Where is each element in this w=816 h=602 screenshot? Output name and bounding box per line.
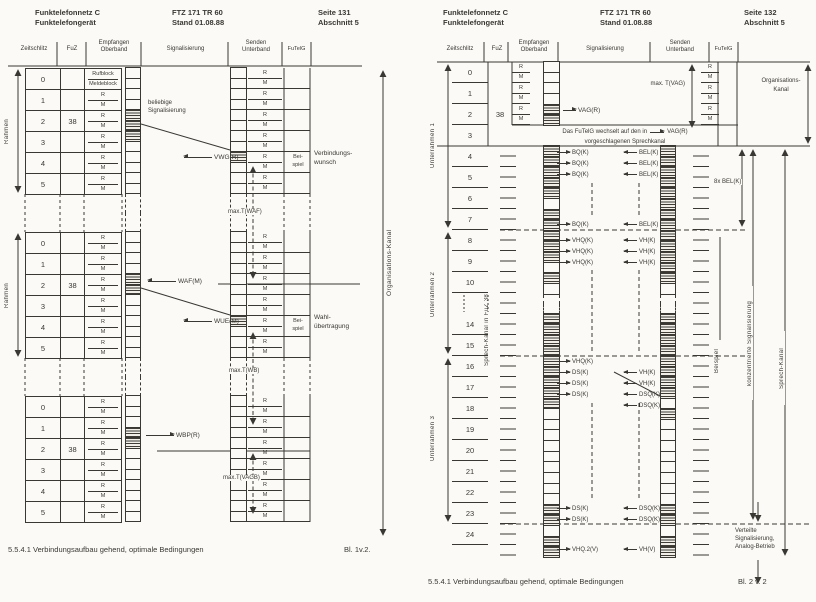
timeslot-number: 1 (452, 83, 488, 104)
timeslot-number: 0 (26, 233, 61, 253)
tx-signal-label: BQ(K) (570, 222, 624, 228)
m-subcell: M (248, 285, 282, 295)
rm-cell: R M (85, 111, 121, 131)
r-subcell: R (248, 316, 282, 327)
vag-signal: VAG(R) (563, 105, 600, 115)
timeslot-row: 7 (452, 209, 488, 230)
beispiel-line1: Bei- (287, 317, 309, 325)
sprech-kanal-label: Sprech-Kanal (779, 331, 785, 405)
senden-rm-row: R M (247, 68, 310, 89)
senden-rm-row: R M (247, 438, 310, 459)
m-subcell: M (85, 244, 121, 254)
signal-row: DS(K) DSQ(K) (557, 503, 660, 514)
timeslot-number: 0 (26, 69, 61, 89)
signal-row: BQ(K) BEL(K) (557, 219, 658, 230)
ds-dsq-group: DS(K) DSQ(K) DS(K) DSQ(K) (557, 503, 660, 525)
signal-segment (125, 511, 141, 523)
timeslot-row: 4 R M (26, 153, 121, 174)
senden-rm-row: R M (247, 232, 310, 253)
beispiel-label: Beispiel (714, 343, 720, 379)
wahluebertragung-label: Wahl- übertragung (314, 313, 349, 331)
m-subcell: M (85, 265, 121, 275)
timeslot-row: 15 (452, 335, 488, 356)
wue-signal: WUE(M) (184, 316, 239, 326)
empfangen-tick-column (500, 146, 516, 558)
rm-row: R M (512, 62, 530, 83)
timeslot-number: 6 (452, 188, 488, 209)
signal-segment (125, 183, 141, 195)
dsq-solo-row: DSQ(K) (624, 400, 660, 411)
m-subcell: M (701, 115, 719, 126)
beispiel-line2: spiel (287, 325, 309, 333)
rx-signal-label: VH(K) (637, 381, 655, 387)
signal-row: DS(K) VH(K) (557, 378, 660, 389)
empfangen-strip-3 (125, 396, 141, 522)
arrow-right-icon (563, 110, 576, 111)
timeslot-row: 19 (452, 419, 488, 440)
unterrahmen-2-label: Unterrahmen 2 (430, 238, 436, 350)
fuz-number (61, 254, 85, 274)
verbindung-line1: Verbindungs- (314, 149, 352, 158)
rx-signal-label: VH(K) (637, 370, 655, 376)
m-subcell: M (248, 121, 282, 131)
r-subcell: R (248, 110, 282, 121)
senden-rm-row: R M (247, 173, 310, 194)
rx-signal-label: BEL(K) (637, 150, 658, 156)
arrow-left-icon (624, 251, 637, 252)
senden-strip-3 (230, 396, 247, 522)
tx-signal-label: BQ(K) (570, 172, 624, 178)
timeslot-number: 0 (26, 397, 61, 417)
timeslot-row: 1 (452, 83, 512, 104)
empfangen-strip-gap-2 (125, 358, 141, 396)
rx-signal-label: DSQ(K) (637, 403, 660, 409)
timeslot-number: 18 (452, 398, 488, 419)
fuz-number: 38 (61, 275, 85, 295)
organisations-kanal-label: Organisations-Kanal (386, 165, 393, 360)
timeslot-row: 17 (452, 377, 488, 398)
signal-row: DS(K) DSQ(K) (557, 389, 660, 400)
signal-segment (543, 295, 560, 305)
signal-row: VHQ(K) VH(K) (557, 246, 655, 257)
signal-segment (125, 377, 141, 396)
tx-signal-label: BQ(K) (570, 150, 624, 156)
r-subcell: R (248, 274, 282, 285)
rx-signal-label: DSQ(K) (637, 392, 660, 398)
tx-signal-label: VHQ(K) (570, 359, 624, 365)
timeslot-number: 24 (452, 524, 488, 545)
max-t-waf-label: max.T(WAF) (227, 209, 263, 215)
timeslot-number: 16 (452, 356, 488, 377)
signal-row: BQ(K) BEL(K) (557, 158, 658, 169)
fuz-number (61, 132, 85, 152)
arrow-left-icon (624, 394, 637, 395)
timeslot-row (452, 293, 488, 314)
r-subcell: R (88, 502, 118, 513)
fuz-number (61, 69, 85, 89)
arrow-left-icon (624, 262, 637, 263)
timeslot-number: 22 (452, 482, 488, 503)
tx-signal-label: BQ(K) (570, 161, 624, 167)
rm-cell: R M (85, 296, 121, 316)
rx-signal-label: VH(K) (637, 260, 655, 266)
page-132: Funktelefonnetz C Funktelefongerät FTZ 1… (408, 0, 816, 602)
r-subcell: R (512, 104, 530, 115)
signal-segment (125, 213, 141, 232)
m-subcell: M (85, 164, 121, 174)
arrow-left-icon (148, 281, 176, 282)
timeslot-row: 2 38 R M (26, 111, 121, 132)
timeslot-number: 8 (452, 230, 488, 251)
rm-cell: R M (85, 481, 121, 501)
m-subcell: M (248, 348, 282, 358)
arrow-right-icon (557, 163, 570, 164)
frame-3-table: 0 R M 1 R M 2 38 R M 3 R M (25, 396, 122, 523)
page-131: Funktelefonnetz C Funktelefongerät FTZ 1… (0, 0, 408, 602)
timeslot-row: 3 R M (26, 296, 121, 317)
m-subcell: Meldeblock (85, 80, 121, 90)
wahl-line2: übertragung (314, 322, 349, 331)
org-slot-numbers: 0 1 2 38 (452, 62, 512, 125)
senden-tick-column (693, 146, 709, 558)
rahmen-label-1: Rahmen (4, 100, 10, 162)
senden-rm-row: R M (247, 480, 310, 501)
timeslot-row: 0 (452, 62, 512, 83)
timeslot-number: 17 (452, 377, 488, 398)
r-subcell: R (88, 254, 118, 265)
senden-rm-column-1: R M R M R M R M R M R M (247, 68, 310, 194)
fuz-number: 38 (488, 104, 512, 125)
senden-rm-column: R M R M R M (701, 62, 719, 125)
signal-segment (230, 213, 247, 232)
signal-row: BQ(K) BEL(K) (557, 169, 658, 180)
timeslot-row: 5 R M (26, 174, 121, 195)
fuz-number: 38 (61, 439, 85, 459)
timeslot-row: 0 R M (26, 233, 121, 254)
timeslot-number: 5 (26, 174, 61, 194)
rm-cell: R M (85, 174, 121, 194)
timeslot-number: 4 (26, 317, 61, 337)
wue-label: WUE(M) (214, 318, 239, 325)
arrow-right-icon (557, 224, 570, 225)
timeslot-row: 0 R M (26, 397, 121, 418)
senden-strip-1 (230, 68, 247, 194)
arrow-left-icon (184, 321, 212, 322)
r-subcell: R (88, 460, 118, 471)
arrow-right-icon (146, 435, 174, 436)
timeslot-row: 4 R M (26, 481, 121, 502)
arrow-right-icon (557, 383, 570, 384)
arrow-left-icon (624, 163, 637, 164)
timeslot-row: 1 R M (26, 90, 121, 111)
fuz-number: 38 (61, 111, 85, 131)
r-subcell: R (88, 481, 118, 492)
timeslot-number: 10 (452, 272, 488, 293)
timeslot-number: 4 (452, 146, 488, 167)
r-subcell: R (248, 480, 282, 491)
timeslot-number: 5 (26, 502, 61, 522)
beispiel-note-2: Bei- spiel (287, 317, 309, 333)
r-subcell: R (88, 111, 118, 122)
m-subcell: M (248, 243, 282, 253)
m-subcell: M (512, 115, 530, 126)
speech-empfangen-strip (543, 146, 560, 558)
rm-cell: R M (85, 338, 121, 358)
timeslot-row: 2 38 R M (26, 275, 121, 296)
sheet-number: Bl. 2 v. 2 (738, 577, 767, 586)
vag-label: VAG(R) (578, 107, 600, 114)
r-subcell: R (88, 90, 118, 101)
r-subcell: R (248, 173, 282, 184)
fuz-number (61, 174, 85, 194)
timeslot-number: 4 (26, 481, 61, 501)
timeslot-number: 2 (452, 104, 488, 125)
signal-segment (660, 283, 676, 295)
r-subcell: Rufblock (88, 69, 118, 80)
ds-group: DS(K) VH(K) DS(K) VH(K) DS(K) DSQ(K) (557, 367, 660, 400)
bq-bel-group-1: BQ(K) BEL(K) BQ(K) BEL(K) BQ(K) BEL(K) (557, 147, 658, 180)
senden-strip-gap-2 (230, 358, 247, 396)
m-subcell: M (248, 184, 282, 194)
timeslot-number (452, 293, 488, 314)
rahmen-label-2: Rahmen (4, 264, 10, 326)
m-subcell: M (248, 163, 282, 173)
m-subcell: M (85, 185, 121, 195)
figure-caption: 5.5.4.1 Verbindungsaufbau gehend, optima… (428, 577, 624, 586)
r-subcell: R (701, 83, 719, 94)
arrow-right-icon (557, 174, 570, 175)
note-text1: Das FuTelG wechselt auf den in (562, 127, 647, 137)
timeslot-number: 19 (452, 419, 488, 440)
r-subcell: R (248, 253, 282, 264)
tx-signal-label: VHQ(K) (570, 249, 624, 255)
max-t-wb-label: max.T(WB) (228, 368, 260, 374)
arrow-right-icon (557, 361, 570, 362)
fuz-number (61, 460, 85, 480)
signal-segment (543, 283, 560, 295)
tx-signal-label: VHQ(K) (570, 260, 624, 266)
arrow-left-icon (624, 508, 637, 509)
m-subcell: M (85, 492, 121, 502)
m-subcell: M (85, 307, 121, 317)
beispiel-note-1: Bei- spiel (287, 153, 309, 169)
rx-signal-label: DSQ(K) (637, 517, 660, 523)
r-subcell: R (248, 417, 282, 428)
m-subcell: M (85, 471, 121, 481)
signal-segment (125, 194, 141, 213)
fuz-number (61, 296, 85, 316)
rm-cell: Rufblock Meldeblock (85, 69, 121, 89)
tx-signal-label: DS(K) (570, 506, 624, 512)
m-subcell: M (85, 513, 121, 523)
timeslot-number: 5 (452, 167, 488, 188)
m-subcell: M (248, 79, 282, 89)
org-kanal-line1: Organisations- (752, 77, 810, 86)
m-subcell: M (512, 73, 530, 84)
org-empfangen-strip (543, 62, 560, 126)
arrow-right-icon (557, 519, 570, 520)
m-subcell: M (701, 73, 719, 84)
arrow-left-icon (624, 519, 637, 520)
max-t-vagb-label: max.T(VAGB) (222, 475, 261, 481)
m-subcell: M (248, 512, 282, 522)
m-subcell: M (248, 407, 282, 417)
tx-signal-label: VHQ(K) (570, 238, 624, 244)
rx-signal-label: VH(V) (637, 547, 655, 553)
timeslot-row: 23 (452, 503, 488, 524)
rx-signal-label: BEL(K) (637, 222, 658, 228)
frame-1-table: 0 Rufblock Meldeblock 1 R M 2 38 R M 3 (25, 68, 122, 195)
rm-row: R M (701, 62, 719, 83)
signal-segment (543, 114, 560, 126)
rm-row: R M (512, 83, 530, 104)
beliebige-line2: Signalisierung (148, 107, 186, 115)
wahl-line1: Wahl- (314, 313, 349, 322)
timeslot-number: 21 (452, 461, 488, 482)
m-subcell: M (248, 306, 282, 316)
rx-signal-label: BEL(K) (637, 161, 658, 167)
m-subcell: M (85, 143, 121, 153)
timeslot-row: 5 (452, 167, 488, 188)
timeslot-number: 15 (452, 335, 488, 356)
rm-cell: R M (85, 153, 121, 173)
beispiel-line2: spiel (287, 161, 309, 169)
rm-cell: R M (85, 317, 121, 337)
r-subcell: R (88, 233, 118, 244)
r-subcell: R (701, 104, 719, 115)
rx-signal-label: BEL(K) (637, 172, 658, 178)
timeslot-row: 3 R M (26, 460, 121, 481)
tx-signal-label: DS(K) (570, 392, 624, 398)
timeslot-number: 3 (26, 296, 61, 316)
senden-rm-row: R M (247, 295, 310, 316)
m-subcell: M (248, 449, 282, 459)
m-subcell: M (85, 408, 121, 418)
r-subcell: R (248, 152, 282, 163)
vwg-signal: VWG(R) (184, 152, 239, 162)
senden-rm-row: R M (247, 337, 310, 358)
arrow-left-icon (624, 174, 637, 175)
rm-cell: R M (85, 439, 121, 459)
fuz-number (61, 233, 85, 253)
speech-slot-numbers: 4 5 6 7 8 9 10 14 15 16 17 18 19 20 (452, 146, 488, 545)
m-subcell: M (85, 101, 121, 111)
timeslot-row: 18 (452, 398, 488, 419)
timeslot-number: 7 (452, 209, 488, 230)
unterrahmen-1-label: Unterrahmen 1 (430, 95, 436, 195)
frame-2-table: 0 R M 1 R M 2 38 R M 3 R M (25, 232, 122, 359)
timeslot-number: 1 (26, 418, 61, 438)
senden-strip-2 (230, 232, 247, 358)
senden-rm-column-2: R M R M R M R M R M R M (247, 232, 310, 358)
m-subcell: M (85, 349, 121, 359)
r-subcell: R (88, 397, 118, 408)
r-subcell: R (88, 296, 118, 307)
m-subcell: M (85, 286, 121, 296)
signal-segment (230, 347, 247, 359)
timeslot-number: 2 (26, 111, 61, 131)
wbp-label: WBP(R) (176, 432, 200, 439)
signal-segment (230, 377, 247, 396)
timeslot-row: 10 (452, 272, 488, 293)
tx-signal-label: DS(K) (570, 370, 624, 376)
r-subcell: R (88, 317, 118, 328)
signal-segment (660, 546, 676, 558)
verteilte-line2: Signalisierung, (735, 535, 775, 543)
r-subcell: R (88, 275, 118, 286)
verteilte-line3: Analog-Betrieb (735, 543, 775, 551)
rm-row: R M (512, 104, 530, 125)
r-subcell: R (248, 131, 282, 142)
r-subcell: R (88, 338, 118, 349)
r-subcell: R (88, 174, 118, 185)
timeslot-number: 1 (26, 90, 61, 110)
timeslot-row: 20 (452, 440, 488, 461)
timeslot-row: 2 38 R M (26, 439, 121, 460)
vhq2-vh-row: VHQ.2(V) VH(V) (557, 544, 655, 555)
r-subcell: R (88, 153, 118, 164)
m-subcell: M (248, 491, 282, 501)
r-subcell: R (248, 501, 282, 512)
rx-signal-label: DSQ(K) (637, 506, 660, 512)
vhq-vh-group: VHQ(K) VH(K) VHQ(K) VH(K) VHQ(K) VH(K) (557, 235, 655, 268)
timeslot-row: 4 (452, 146, 488, 167)
fuz-number (61, 418, 85, 438)
signal-segment (230, 183, 247, 195)
timeslot-number: 20 (452, 440, 488, 461)
vwg-label: VWG(R) (214, 154, 239, 161)
arrow-right-icon (557, 152, 570, 153)
empfangen-strip-2 (125, 232, 141, 358)
note-line1: Das FuTelG wechselt auf den in VAG(R) (512, 127, 738, 137)
timeslot-number: 3 (26, 460, 61, 480)
m-subcell: M (248, 142, 282, 152)
bq-bel-group-2: BQ(K) BEL(K) (557, 219, 658, 230)
fuz-number (488, 83, 512, 104)
arrow-right-icon (557, 251, 570, 252)
tx-signal-label: DS(K) (570, 381, 624, 387)
m-subcell: M (85, 429, 121, 439)
fuz-number (61, 338, 85, 358)
fuz-number (61, 317, 85, 337)
m-subcell: M (512, 94, 530, 105)
tx-signal-label: VHQ.2(V) (570, 547, 624, 553)
timeslot-number: 2 (26, 439, 61, 459)
waf-label: WAF(M) (178, 278, 202, 285)
verteilte-signalisierung-note: Verteilte Signalisierung, Analog-Betrieb (735, 527, 775, 551)
r-subcell: R (88, 439, 118, 450)
note-vag-label: VAG(R) (667, 127, 688, 137)
arrow-right-icon (557, 549, 570, 550)
unterrahmen-3-label: Unterrahmen 3 (430, 378, 436, 498)
vhq-solo-row: VHQ(K) (557, 356, 624, 367)
arrow-left-icon (624, 383, 637, 384)
sheet-number: Bl. 1v.2. (344, 545, 371, 554)
signal-row: VHQ(K) VH(K) (557, 257, 655, 268)
signal-row: BQ(K) BEL(K) (557, 147, 658, 158)
m-subcell: M (85, 328, 121, 338)
m-subcell: M (701, 94, 719, 105)
timeslot-number: 3 (452, 125, 488, 146)
timeslot-row-3: 3 (452, 125, 488, 146)
rm-cell: R M (85, 502, 121, 522)
senden-rm-row: R M (247, 89, 310, 110)
timeslot-number: 0 (452, 62, 488, 83)
fuz-number (61, 90, 85, 110)
timeslot-row: 21 (452, 461, 488, 482)
arrow-left-icon (624, 224, 637, 225)
note-text2: vorgeschlagenen Sprechkanal (512, 137, 738, 147)
